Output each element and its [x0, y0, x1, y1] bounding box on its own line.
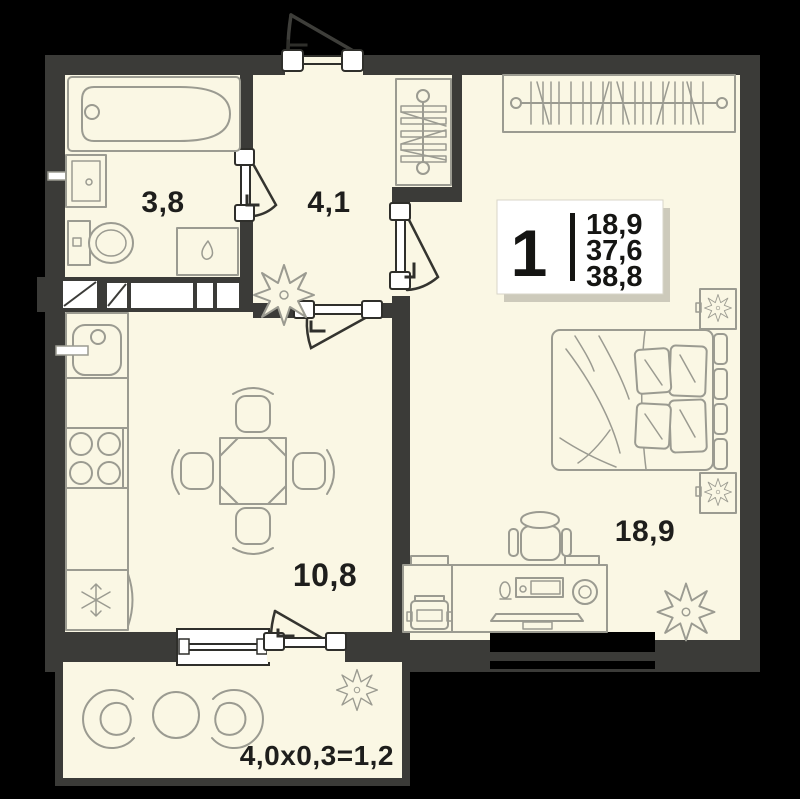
room-count: 1 — [511, 216, 548, 290]
plant-balcony — [337, 670, 378, 711]
bedroom-window — [490, 632, 655, 669]
washing-machine — [177, 228, 238, 275]
hallway-area-label: 4,1 — [307, 186, 350, 219]
bathtub — [68, 77, 240, 151]
nightstand-bottom — [696, 473, 736, 513]
keyboard — [491, 614, 583, 621]
nightstand-top — [696, 289, 736, 329]
dining-table — [220, 438, 286, 504]
printer — [407, 596, 452, 629]
bathroom-area-label: 3,8 — [141, 186, 184, 219]
floor-plan-page: 3,8 4,1 10,8 18,9 4,0x0,3=1,2 1 18,9 37,… — [0, 0, 800, 799]
info-card-divider — [570, 213, 575, 281]
balcony-table — [153, 692, 199, 738]
floor-plan-canvas: 3,8 4,1 10,8 18,9 4,0x0,3=1,2 1 18,9 37,… — [0, 0, 800, 799]
desk — [403, 556, 607, 632]
toilet — [68, 221, 133, 265]
bed — [552, 330, 727, 470]
info-card: 1 18,9 37,6 38,8 — [497, 200, 670, 302]
info-card-value-3: 38,8 — [586, 261, 642, 293]
plant-hallway — [254, 265, 314, 325]
plant-bedroom — [658, 584, 715, 641]
balcony-dimensions-label: 4,0x0,3=1,2 — [240, 740, 394, 771]
kitchen-living-area-label: 10,8 — [293, 557, 357, 593]
bedroom-area-label: 18,9 — [615, 515, 675, 548]
bedroom-wardrobe — [503, 75, 735, 132]
vent-shaft-wall — [45, 277, 253, 312]
kitchen-window — [177, 629, 269, 665]
hallway-wardrobe — [396, 79, 451, 185]
